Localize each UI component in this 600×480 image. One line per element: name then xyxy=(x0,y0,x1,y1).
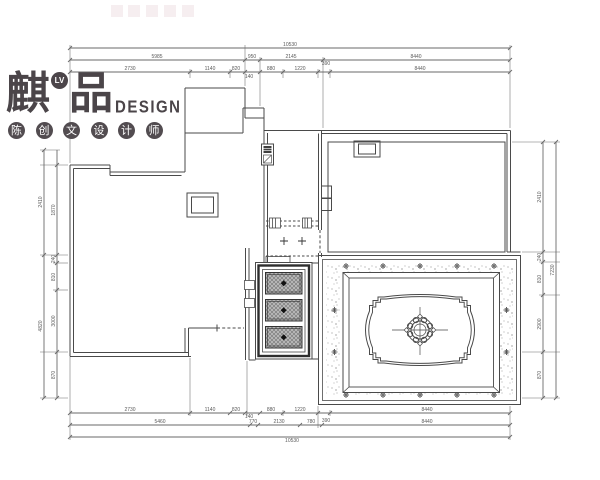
logo-lv-badge: LV xyxy=(51,72,68,89)
logo-designer-char: 计 xyxy=(118,122,135,139)
dim-label: 810 xyxy=(51,272,57,280)
dim-label: 240 xyxy=(51,255,57,263)
logo-char-left: 麒 xyxy=(6,72,50,116)
dim-label: 10530 xyxy=(283,42,297,48)
dim-label: 1220 xyxy=(294,66,305,72)
dim-label: 8440 xyxy=(421,419,432,425)
dim-label: 2145 xyxy=(285,54,296,60)
dim-label: 390 xyxy=(322,61,330,67)
dim-label: 8440 xyxy=(414,66,425,72)
dim-label: 140 xyxy=(245,74,253,80)
dim-label: 880 xyxy=(267,407,275,413)
dim-label: 1140 xyxy=(205,407,216,413)
dim-label: 10530 xyxy=(285,438,299,444)
dim-label: 2730 xyxy=(124,407,135,413)
logo-designer-char: 师 xyxy=(146,122,163,139)
dim-label: 3000 xyxy=(51,315,57,326)
dim-label: 820 xyxy=(232,407,240,413)
cad-drawing-page: 麒LV品DESIGN 陈创文设计师 1053059859502145844027… xyxy=(0,0,600,480)
dim-label: 240 xyxy=(537,253,543,261)
dim-label: 2900 xyxy=(537,318,543,329)
logo-designer-char: 设 xyxy=(91,122,108,139)
dim-label: 950 xyxy=(248,54,256,60)
dim-label: 2130 xyxy=(273,419,284,425)
dim-label: 770 xyxy=(249,419,257,425)
dim-label: 810 xyxy=(537,274,543,282)
logo-brand-row: 麒LV品DESIGN xyxy=(6,72,186,122)
dim-label: 1870 xyxy=(51,204,57,215)
dim-label: 820 xyxy=(232,66,240,72)
dim-label: 870 xyxy=(537,371,543,379)
dim-label: 390 xyxy=(322,418,330,424)
dim-label: 780 xyxy=(307,419,315,425)
logo-designer-char: 陈 xyxy=(8,122,25,139)
dim-label: 2410 xyxy=(38,196,44,207)
logo-designer-char: 创 xyxy=(36,122,53,139)
dim-label: 4820 xyxy=(38,320,44,331)
dim-label: 1220 xyxy=(294,407,305,413)
dim-label: 2730 xyxy=(124,66,135,72)
dim-label: 5460 xyxy=(154,419,165,425)
dim-label: 1140 xyxy=(205,66,216,72)
logo-design-text: DESIGN xyxy=(115,98,182,118)
logo-designer-row: 陈创文设计师 xyxy=(8,122,163,139)
studio-logo: 麒LV品DESIGN 陈创文设计师 xyxy=(6,72,186,144)
logo-designer-char: 文 xyxy=(63,122,80,139)
dim-label: 2410 xyxy=(537,191,543,202)
dim-label: 7230 xyxy=(550,264,556,275)
dim-label: 5985 xyxy=(151,54,162,60)
dim-label: 880 xyxy=(267,66,275,72)
dim-label: 8440 xyxy=(410,54,421,60)
dim-label: 870 xyxy=(51,371,57,379)
dim-label: 8440 xyxy=(421,407,432,413)
logo-char-right: 品 xyxy=(69,72,113,116)
